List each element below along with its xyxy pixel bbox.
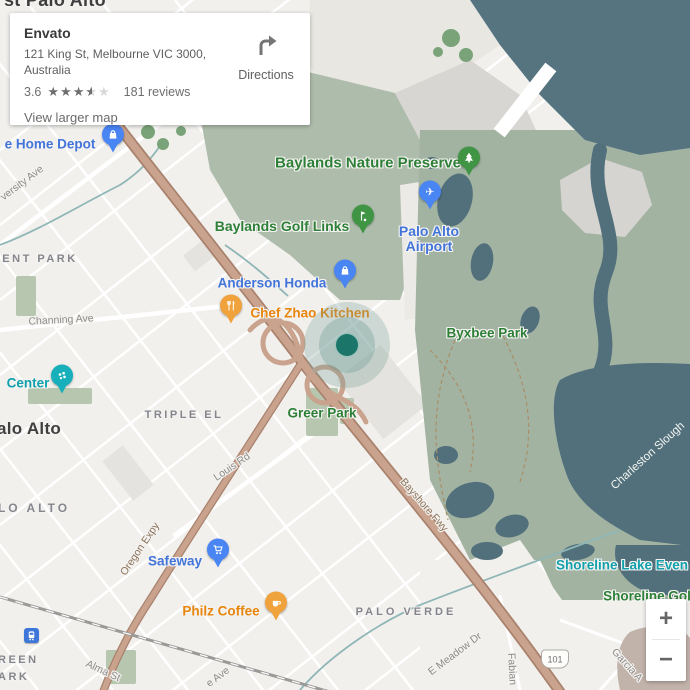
safeway-pin[interactable]	[207, 539, 229, 568]
zoom-in-button[interactable]: +	[646, 599, 686, 639]
shopping-bag-icon	[334, 260, 356, 282]
zoom-out-button[interactable]: −	[646, 640, 686, 680]
shopping-cart-icon	[207, 539, 229, 561]
location-dot	[335, 333, 359, 357]
map-canvas[interactable]: st Palo Alto alo Alto ENT PARK TRIPLE EL…	[0, 0, 690, 690]
address-line1: 121 King St, Melbourne VIC 3000,	[24, 47, 206, 61]
address-line2: Australia	[24, 63, 71, 77]
airport-pin[interactable]: ✈	[419, 181, 441, 210]
star-icon: ★	[47, 84, 60, 99]
place-info-card: Envato 121 King St, Melbourne VIC 3000, …	[10, 13, 310, 125]
shopping-bag-icon	[102, 124, 124, 146]
rating-value: 3.6	[24, 85, 41, 99]
view-larger-map-link[interactable]: View larger map	[24, 110, 296, 125]
home-depot-pin[interactable]	[102, 124, 124, 153]
reviews-count[interactable]: 181 reviews	[124, 85, 191, 99]
restaurant-icon	[220, 295, 242, 317]
star-half-icon: ★★	[85, 84, 98, 100]
highway-shield-number: 101	[547, 654, 562, 664]
star-icon: ★	[98, 84, 111, 99]
star-icon: ★	[60, 84, 73, 99]
directions-button[interactable]: Directions	[234, 31, 298, 82]
center-pin[interactable]	[51, 365, 73, 394]
nature-preserve-pin[interactable]	[458, 147, 480, 176]
directions-icon	[252, 31, 280, 59]
philz-coffee-pin[interactable]	[265, 592, 287, 621]
palette-icon	[51, 365, 73, 387]
rating-row: 3.6 ★★★★★★ 181 reviews	[24, 84, 296, 100]
star-rating: ★★★★★★	[47, 84, 110, 100]
golf-pin[interactable]	[352, 205, 374, 234]
chef-zhao-pin[interactable]	[220, 295, 242, 324]
train-station-icon[interactable]	[24, 628, 39, 643]
tree-icon	[458, 147, 480, 169]
highway-shield-101: 101	[541, 650, 569, 669]
coffee-cup-icon	[265, 592, 287, 614]
place-address: 121 King St, Melbourne VIC 3000, Austral…	[24, 46, 224, 78]
anderson-honda-pin[interactable]	[334, 260, 356, 289]
airplane-icon: ✈	[419, 181, 441, 203]
zoom-control: + −	[646, 599, 686, 681]
directions-label: Directions	[234, 68, 298, 82]
golf-flag-icon	[352, 205, 374, 227]
star-icon: ★	[73, 84, 86, 99]
